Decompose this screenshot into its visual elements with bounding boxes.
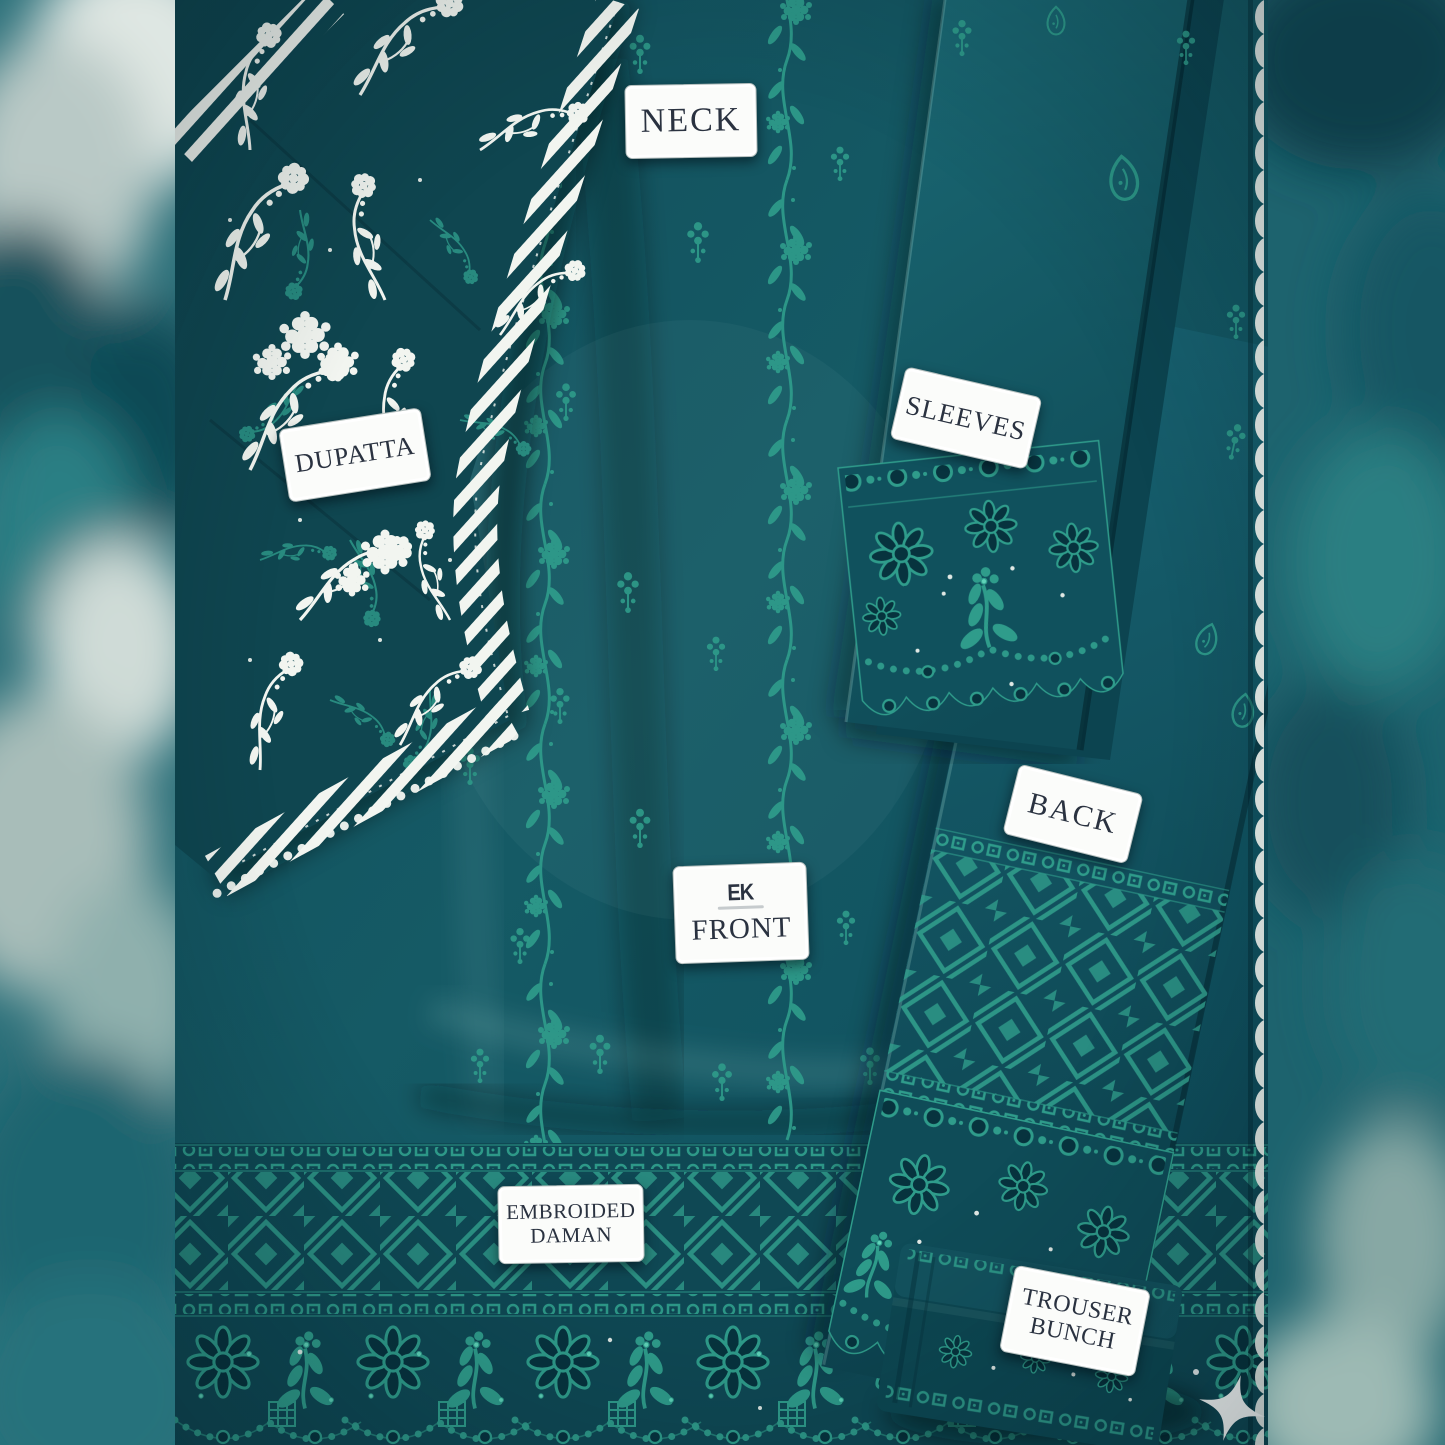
label-daman-line2: DAMAN (530, 1223, 612, 1248)
lace-edge (1248, 0, 1268, 1445)
label-neck-text: NECK (640, 101, 741, 141)
label-sleeves-text: SLEEVES (903, 389, 1029, 446)
product-photo: NECK DUPATTA SLEEVES BACK EK FRONT EMBRO… (0, 0, 1445, 1445)
fabric-scene (0, 0, 1445, 1445)
label-front-text: FRONT (691, 911, 792, 947)
label-neck: NECK (624, 83, 757, 159)
label-embroided-daman: EMBROIDED DAMAN (497, 1184, 644, 1265)
label-daman-line1: EMBROIDED (506, 1199, 636, 1225)
label-back-text: BACK (1025, 787, 1122, 842)
daman-border (175, 1143, 1381, 1445)
brand-logo-caption (718, 905, 764, 910)
label-front: EK FRONT (672, 862, 809, 965)
label-dupatta-text: DUPATTA (293, 431, 417, 479)
brand-logo: EK (727, 881, 754, 905)
